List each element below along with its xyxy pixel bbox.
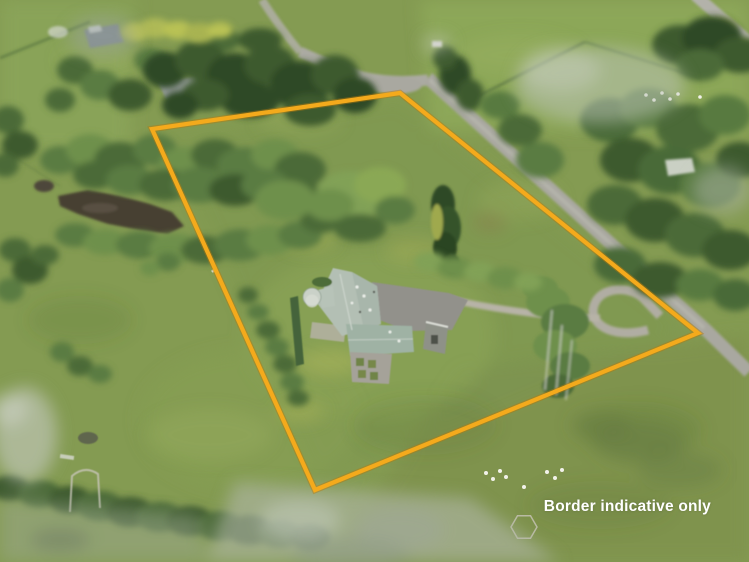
courtyard-garden-bed — [370, 372, 378, 380]
shed-door — [431, 335, 438, 344]
golden-conifer — [431, 204, 443, 240]
courtyard-garden-bed — [356, 358, 364, 366]
garden-bed — [312, 277, 332, 287]
courtyard-garden-bed — [368, 360, 376, 368]
pond-reflection — [82, 203, 118, 213]
sheep-dot — [504, 475, 508, 479]
sheep-dot — [553, 476, 557, 480]
skylight — [351, 302, 354, 305]
dark-shrub — [78, 432, 98, 444]
sheep-dot — [698, 95, 702, 99]
sheep-dot — [545, 470, 549, 474]
sheep-dot — [491, 477, 495, 481]
aerial-photo: Border indicative only — [0, 0, 749, 562]
roof-vent — [359, 311, 361, 313]
skylight — [398, 340, 401, 343]
sheep-dot — [498, 469, 502, 473]
privacy-blur-top-left — [69, 16, 137, 56]
roof-vent — [373, 291, 375, 293]
sheep-dot — [522, 485, 526, 489]
sheep-dot — [484, 471, 488, 475]
aerial-photo-canvas — [0, 0, 749, 562]
caption-border-indicative: Border indicative only — [544, 498, 711, 516]
skylight — [355, 285, 358, 288]
sheep-dot — [560, 468, 564, 472]
skylight — [362, 294, 365, 297]
courtyard-garden-bed — [358, 370, 366, 378]
skylight — [389, 331, 392, 334]
skylight — [368, 308, 371, 311]
